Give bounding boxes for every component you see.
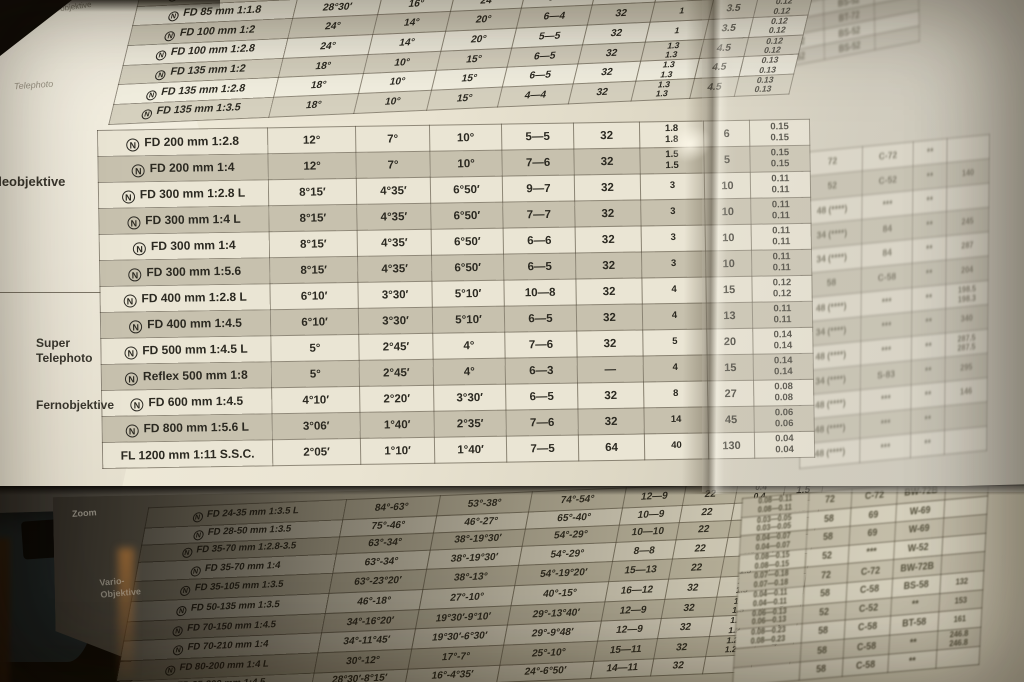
lens-system-badge-icon: N [130,398,143,411]
cell-eg: 6—5 [506,383,578,410]
cell-eg: 7—6 [502,149,574,176]
cell-a2: 4°35′ [357,203,431,230]
cell-eg: 10—8 [504,279,576,306]
lens-name: FL 1200 mm 1:11 S.S.C. [121,446,255,462]
cell-a1: 5° [271,360,359,387]
orange-fold-glow [118,548,134,678]
cell-ap: 32 [651,656,706,675]
lens-name: FD 200 mm 1:4 [150,159,235,174]
cell-a2: 1°10′ [360,437,434,464]
cell-a3: 5°10′ [432,280,504,307]
fold-crease [681,0,738,494]
cell-ap: 32 [576,278,642,305]
cell-wt [944,426,986,454]
cell-a2: 7° [355,125,429,152]
cell-ap: 22 [669,557,725,579]
cell-a3: 6°50′ [430,176,502,203]
cell-case: ** [913,187,947,215]
cell-mag: 0.13 0.13 [734,74,793,96]
lens-name: FD 500 mm 1:4.5 L [142,341,248,357]
lens-system-badge-icon: N [155,51,168,61]
cell-a2: 4°35′ [356,177,430,204]
photo-of-lens-spec-sheet: Objektive NFD 85 mm 1:1.2 L28°30′16°24°8… [0,0,1024,682]
cell-ap: 64 [578,434,644,461]
lens-system-badge-icon: N [133,242,146,255]
cell-a2: 2°45′ [359,359,433,386]
cell-eg: 12—9 [598,619,662,641]
lens-name: FD 300 mm 1:4 L [145,211,241,226]
lens-system-badge-icon: N [164,665,176,676]
cell-name: NFD 300 mm 1:4 [99,232,269,261]
lens-name: FD 800 mm 1:5.6 L [143,419,249,435]
cell-name: NFD 200 mm 1:4 [98,154,268,183]
cell-eg: 15—11 [594,639,658,661]
cell-name: NReflex 500 mm 1:8 [101,362,271,391]
cell-name: NFD 200 mm 1:2.8 [98,128,268,157]
cell-case: ** [913,138,947,166]
cell-eg: 7—6 [505,331,577,358]
cell-ap: 32 [577,330,643,357]
cell-name: NFD 400 mm 1:4.5 [100,310,270,339]
cell-case: ** [912,260,946,288]
cell-name: NFD 300 mm 1:4 L [99,206,269,235]
cell-case: ** [913,211,947,239]
lens-name: FD 24-35 mm 1:3.5 L [206,505,300,520]
cell-a1: 8°15′ [269,204,357,231]
cell-ap: 32 [654,637,710,659]
lens-name: FD 300 mm 1:2.8 L [140,185,246,201]
cell-a2: 7° [356,151,430,178]
cell-mag: 0.14 0.14 [753,353,813,380]
cell-ap: 32 [657,617,713,639]
cell-mag: 0.12 0.12 [749,15,808,37]
zoom-right-panel-wrap: 0.08—0.11 0.08—0.1172C-72BW-72B0.03—0.05… [732,486,989,682]
lens-name: FD 80-200 mm 1:4 L [179,658,270,673]
cell-hood: C-58 [842,655,888,677]
cell-a3: 1°40′ [434,436,506,463]
cell-ap: — [577,356,643,383]
telephoto-right-panel-wrap: 72C-72**52C-52**14048 (****)*****34 (***… [799,134,990,469]
lens-system-badge-icon: N [132,164,145,177]
cell-a2: 1°40′ [360,411,434,438]
lens-name: FD 400 mm 1:2.8 L [141,289,247,305]
cell-eg: 8—8 [612,540,676,562]
cell-a3: 10° [430,150,502,177]
lens-system-badge-icon: N [141,110,154,120]
zoom-group-label: Zoom [72,507,97,519]
lens-name: FD 85-300 mm 1:4.5 [175,677,266,682]
cell-ap: 22 [672,537,728,559]
cell-ap: 32 [576,304,642,331]
cell-case: ** [911,333,945,361]
lens-system-badge-icon: N [129,320,142,333]
cell-name: NFD 300 mm 1:2.8 L [98,180,268,209]
cell-a3: 4° [433,332,505,359]
lens-system-badge-icon: N [123,294,136,307]
cell-ap: 32 [573,122,639,149]
cell-mag: 0.11 0.11 [751,197,811,224]
cell-a1: 4°10′ [272,386,360,413]
cell-a1: 12° [267,126,355,153]
cell-eg: 7—5 [506,435,578,462]
cell-ap: 32 [574,174,640,201]
cell-ap: 32 [578,408,644,435]
zoom-right-panel-table: 0.08—0.11 0.08—0.1172C-72BW-72B0.03—0.05… [732,486,989,682]
cell-a3: 6°50′ [432,254,504,281]
cell-a1: 3°06′ [272,412,360,439]
cell-mag: 0.11 0.11 [750,171,810,198]
cell-name: NFD 600 mm 1:4.5 [102,388,272,417]
lens-system-badge-icon: N [176,606,188,617]
cell-case: ** [911,430,945,458]
lens-name: FD 35-70 mm 1:2.8-3.5 [195,540,297,555]
cell-eg: 16—12 [605,579,669,601]
cell-eg: 6—5 [504,305,576,332]
cell-case: ** [913,163,947,191]
cell-mag: 0.15 0.15 [750,145,810,172]
lens-system-badge-icon: N [164,31,177,41]
cell-eg: 6—3 [505,357,577,384]
lens-name: Reflex 500 mm 1:8 [143,367,248,383]
cell-mag: 0.11 0.11 [751,223,811,250]
cell-ap: 32 [575,252,641,279]
cell-eg: 7—6 [506,409,578,436]
lens-name: FD 100 mm 1:2 [179,23,257,38]
telephoto-right-panel-table: 72C-72**52C-52**14048 (****)*****34 (***… [799,134,990,469]
cell-a2: 3°30′ [358,307,432,334]
lens-system-badge-icon: N [167,11,180,21]
cell-name: NFD 800 mm 1:5.6 L [102,414,272,443]
cell-a3: 3°30′ [434,384,506,411]
cell-hood: *** [860,433,911,462]
cell-a1: 12° [268,152,356,179]
lens-name: FD 200 mm 1:2.8 [144,133,239,148]
cell-mag: 0.11 0.11 [752,301,812,328]
vario-objektive-group-label: Vario- Objektive [99,574,141,601]
lens-system-badge-icon: N [122,190,135,203]
lens-name: FD 135 mm 1:3.5 [155,102,242,118]
cell-a3: 4° [433,358,505,385]
cell-eg: 6—6 [503,227,575,254]
cell-case: ** [911,382,945,410]
cell-a1: 8°15′ [270,256,358,283]
cell-case: ** [911,357,945,385]
lens-system-badge-icon: N [179,586,191,597]
cell-a3: 10° [429,124,501,151]
cell-a2: 4°35′ [357,229,431,256]
lens-name: FD 400 mm 1:4.5 [147,315,242,330]
cell-eg: 9—7 [502,175,574,202]
cell-case: ** [888,651,937,673]
cell-ap: 32 [578,382,644,409]
lens-system-badge-icon: N [172,645,184,656]
cell-ap: 32 [568,81,635,103]
cell-a2: 2°20′ [360,385,434,412]
cell-a3: 5°10′ [432,306,504,333]
paper-sheet-bottom-clip: NFD 24-35 mm 1:3.5 L84°-63°53°-38°74°-54… [0,486,1024,682]
cell-a2: 16°-4°35′ [405,665,500,682]
cell-a1: 6°10′ [270,308,358,335]
cell-a1: 8°15′ [268,178,356,205]
cell-wt [936,647,980,669]
cell-a1: 6°10′ [270,282,358,309]
cell-mag: 0.15 0.15 [749,119,809,146]
lens-system-badge-icon: N [190,566,202,577]
cell-case: ** [912,284,946,312]
cell-name: NFD 400 mm 1:2.8 L [100,284,270,313]
lens-name: FD 70-150 mm 1:4.5 [186,619,277,634]
cell-ap: 32 [661,597,717,619]
cell-a1: 8°15′ [269,230,357,257]
lens-name: FD 100 mm 1:2.8 [169,43,256,59]
lens-name: FD 135 mm 1:2.8 [160,82,247,98]
lens-system-badge-icon: N [145,90,158,100]
super-label-line1: Super [36,336,92,351]
cell-a1: 5° [271,334,359,361]
super-telephoto-group-label: Super Telephoto [36,336,92,366]
lens-system-badge-icon: N [124,346,137,359]
lens-name: FD 50-135 mm 1:3.5 [190,599,281,614]
cell-a3: 6°50′ [431,202,503,229]
cell-a3: 15° [427,87,503,110]
cell-a1: 2°05′ [272,438,360,465]
cell-mag: 0.14 0.14 [753,327,813,354]
cell-ap: 32 [574,148,640,175]
cell-eg: 12—9 [601,599,665,621]
lens-system-badge-icon: N [172,626,184,637]
cell-name: NFD 500 mm 1:4.5 L [101,336,271,365]
lens-name: FD 35-105 mm 1:3.5 [194,579,285,594]
lens-name: FD 300 mm 1:4 [151,237,236,252]
group-divider-line [0,292,104,293]
lens-name: FD 600 mm 1:4.5 [148,393,243,408]
cell-mag: 0.04 0.04 [754,431,814,458]
cell-mag: 0.12 0.12 [744,35,803,57]
lens-name: FD 28-50 mm 1:3.5 [207,524,292,539]
cell-a2: 4°35′ [358,255,432,282]
lens-system-badge-icon: N [127,216,140,229]
cell-mag: 0.08 0.08 [754,379,814,406]
lens-system-badge-icon: N [125,372,138,385]
lens-system-badge-icon: N [154,70,167,80]
lens-system-badge-icon: N [128,268,141,281]
zoom-lens-table: NFD 24-35 mm 1:3.5 L84°-63°53°-38°74°-54… [112,486,824,682]
cell-name: NFD 300 mm 1:5.6 [100,258,270,287]
cell-eg: 14—11 [591,659,654,679]
lens-system-badge-icon: N [192,512,204,523]
cell-case: ** [912,309,946,337]
lens-name: FD 300 mm 1:5.6 [146,263,241,278]
cell-a3: 2°35′ [434,410,506,437]
cell-name: FL 1200 mm 1:11 S.S.C. [102,440,272,469]
cell-a2: 10° [354,90,432,113]
cell-eg: 5—5 [501,123,573,150]
cell-eg: 6—5 [503,253,575,280]
lens-system-badge-icon: N [192,530,204,541]
cell-eg: 15—13 [609,559,673,581]
lens-name: FD 35-70 mm 1:4 [204,559,282,573]
lens-system-badge-icon: N [126,138,139,151]
cell-eg: 4—4 [498,84,574,107]
fernobjektive-group-label: Fernobjektive [36,398,114,412]
lens-name: FD 70-210 mm 1:4 [187,639,270,653]
cell-ap: 32 [575,226,641,253]
cell-a1: 18° [269,94,359,117]
super-label-line2: Telephoto [36,351,92,366]
cell-case: ** [912,236,946,264]
cell-case: ** [911,406,945,434]
cell-mag: 0.11 0.11 [751,249,811,276]
cell-a2: 2°45′ [359,333,433,360]
zoom-lens-table-wrap: NFD 24-35 mm 1:3.5 L84°-63°53°-38°74°-54… [112,486,824,682]
cell-ap: 32 [575,200,641,227]
cell-mag: 0.12 0.12 [752,275,812,302]
cell-a3: 24°-6°50′ [497,661,594,682]
cell-mag: 0.13 0.13 [739,54,798,76]
cell-a2: 3°30′ [358,281,432,308]
lens-system-badge-icon: N [125,424,138,437]
lens-name: FD 135 mm 1:2 [169,63,247,78]
cell-ap: 32 [665,577,721,599]
lens-system-badge-icon: N [181,548,193,559]
teleobjektive-group-label: Teleobjektive [0,174,65,189]
cell-filter: 58 [799,659,844,681]
cell-eg: 7—7 [503,201,575,228]
cell-a3: 6°50′ [431,228,503,255]
cell-mag: 0.06 0.06 [754,405,814,432]
